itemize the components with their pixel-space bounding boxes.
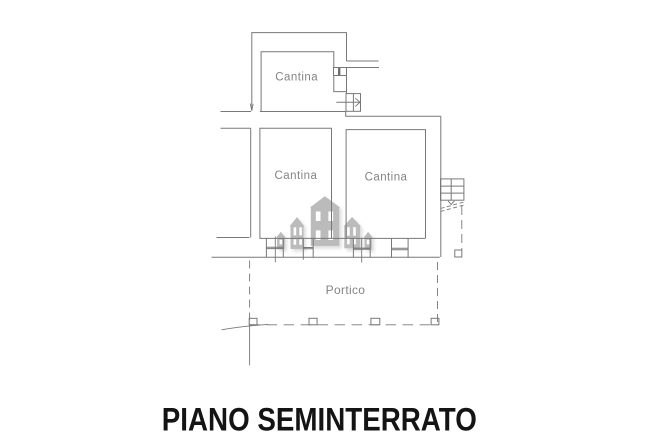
svg-text:Portico: Portico [326, 283, 366, 297]
svg-text:Cantina: Cantina [365, 172, 408, 184]
svg-text:Cantina: Cantina [275, 170, 318, 182]
svg-text:PIANO SEMINTERRATO: PIANO SEMINTERRATO [162, 402, 477, 438]
svg-text:Cantina: Cantina [275, 72, 318, 84]
